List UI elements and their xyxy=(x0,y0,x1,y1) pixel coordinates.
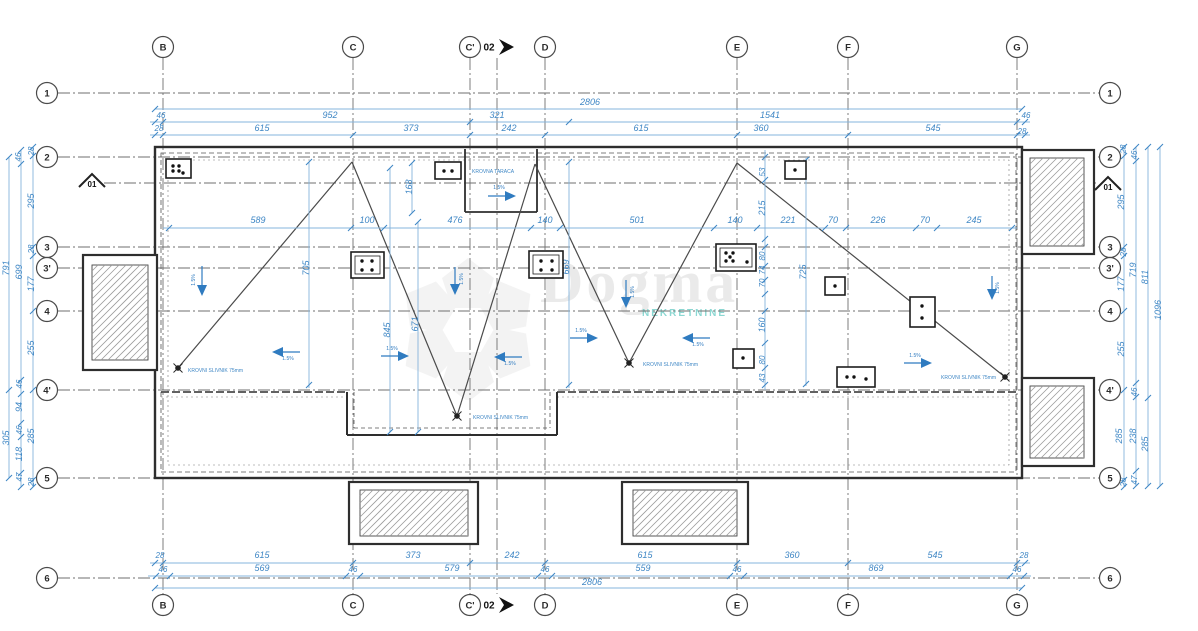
dim-label: 1096 xyxy=(1153,300,1163,320)
dim-label: 615 xyxy=(254,123,270,133)
dim-label: 705 xyxy=(301,260,311,276)
slope-arrow-icon xyxy=(197,285,207,296)
dim-label: 28 xyxy=(1017,127,1027,136)
dim-label: 845 xyxy=(382,322,392,338)
slope-arrow-icon xyxy=(921,358,932,368)
vent-dot xyxy=(724,259,727,262)
dim-label: 952 xyxy=(322,110,337,120)
slope-label: 1.5% xyxy=(459,273,465,285)
terrace-right-bottom-frame xyxy=(1022,378,1094,466)
vent-dot xyxy=(442,169,445,172)
section-marker-label: 02 xyxy=(483,43,495,54)
dim-label: 140 xyxy=(537,215,552,225)
roof-outer-edge xyxy=(155,147,1022,478)
vent-dot xyxy=(741,356,744,359)
slope-label: 1.5% xyxy=(493,185,505,191)
dim-label: 215 xyxy=(757,200,767,217)
section-arrow-icon xyxy=(499,597,514,613)
vent-dot xyxy=(370,259,373,262)
vent-dot xyxy=(731,259,734,262)
grid-bubble-label: 5 xyxy=(44,473,50,484)
vent-dot xyxy=(171,164,174,167)
dim-label: 46 xyxy=(157,111,166,120)
grid-bubble-label: B xyxy=(160,600,167,611)
dim-label: 74 xyxy=(758,265,767,274)
valley-line xyxy=(457,164,535,416)
vent-dot xyxy=(177,164,180,167)
slope-label: 1.5% xyxy=(692,342,704,348)
section-marker-label: 02 xyxy=(483,601,495,612)
dim-label: 360 xyxy=(753,123,768,133)
dim-label: 80 xyxy=(758,251,767,260)
ridge-line xyxy=(178,162,352,368)
dim-label: 46 xyxy=(15,379,24,388)
dim-label: 46 xyxy=(1022,111,1031,120)
dim-label: 1541 xyxy=(760,110,780,120)
dim-label: 255 xyxy=(26,340,36,357)
dim-label: 28 xyxy=(154,124,164,133)
dim-label: 2806 xyxy=(579,97,600,107)
vent-dot xyxy=(539,268,542,271)
dim-label: 100 xyxy=(359,215,374,225)
dim-label: 46 xyxy=(1130,150,1139,159)
dim-label: 46 xyxy=(349,565,358,574)
dim-label: 2806 xyxy=(581,577,602,587)
dim-label: 476 xyxy=(447,215,462,225)
dim-label: 242 xyxy=(500,123,516,133)
dim-label: 46 xyxy=(1013,565,1022,574)
dim-label: 360 xyxy=(784,550,799,560)
dim-label: 160 xyxy=(757,317,767,332)
dim-label: 255 xyxy=(1116,341,1126,358)
roof-plan-canvas: Dogma NEKRETNINE xyxy=(0,0,1198,631)
dim-label: 177 xyxy=(1116,276,1126,292)
slope-label: 1.5% xyxy=(909,353,921,359)
grid-bubble-label: 3' xyxy=(1106,263,1114,274)
dim-label: 671 xyxy=(410,316,420,331)
vent-dot xyxy=(181,171,184,174)
roof-plan-drawing: 2806469523211541462861537324261536054528… xyxy=(0,0,1198,631)
annotation-label: KROVNA TARACA xyxy=(472,169,515,175)
vent-dot xyxy=(550,268,553,271)
roof-offset-edge xyxy=(161,153,1016,472)
dim-label: 70 xyxy=(828,215,838,225)
vent-dot xyxy=(920,304,923,307)
slope-arrow-icon xyxy=(505,191,516,201)
vent-dot xyxy=(793,168,796,171)
elevation-marker-label: 01 xyxy=(88,180,97,189)
annotation-label: KROVNI SLIVNIK 75mm xyxy=(941,375,996,381)
dim-label: 699 xyxy=(14,264,24,279)
dim-label: 28 xyxy=(155,551,165,560)
dim-label: 177 xyxy=(26,276,36,292)
vent-dot xyxy=(731,251,734,254)
grid-bubbles: BBCCC'C'DDEEFFGG1122333'3'444'4'55660202… xyxy=(37,37,1122,616)
vent-dot xyxy=(745,260,748,263)
vent-dot xyxy=(920,316,923,319)
dim-label: 579 xyxy=(444,563,459,573)
grid-bubble-label: G xyxy=(1013,600,1020,611)
dim-label: 295 xyxy=(26,193,36,210)
vent-dot xyxy=(845,375,848,378)
annotation-label: KROVNI SLIVNIK 75mm xyxy=(473,415,528,421)
grid-bubble-label: E xyxy=(734,600,740,611)
vent-dot xyxy=(864,377,867,380)
slope-label: 1.5% xyxy=(575,328,587,334)
grid-bubble-label: C xyxy=(350,600,357,611)
grid-bubble-label: 1 xyxy=(1107,88,1113,99)
vent-dot xyxy=(728,255,731,258)
dim-label: 46 xyxy=(1130,387,1139,396)
grid-bubble-label: B xyxy=(160,42,167,53)
grid-bubble-label: 1 xyxy=(44,88,50,99)
vent-dot xyxy=(360,259,363,262)
dim-label: 305 xyxy=(1,430,11,446)
dim-label: 869 xyxy=(868,563,883,573)
slope-label: 1.5% xyxy=(386,346,398,352)
dim-label: 615 xyxy=(637,550,653,560)
dim-label: 559 xyxy=(635,563,650,573)
dim-label: 221 xyxy=(779,215,795,225)
dim-label: 791 xyxy=(1,260,11,275)
grid-bubble-label: C xyxy=(350,42,357,53)
building-outline xyxy=(83,147,1094,544)
dim-label: 46 xyxy=(541,565,550,574)
dim-label: 28 xyxy=(27,146,36,156)
grid-bubble-label: D xyxy=(542,600,549,611)
roof-vent-icon xyxy=(910,297,935,327)
slope-label: 1.5% xyxy=(504,361,516,367)
dim-label: 285 xyxy=(1140,436,1150,453)
dim-label: 70 xyxy=(920,215,930,225)
roof-vent-icon xyxy=(166,159,191,178)
grid-bubble-label: D xyxy=(542,42,549,53)
dim-label: 118 xyxy=(14,447,24,461)
dim-label: 545 xyxy=(925,123,941,133)
dim-label: 615 xyxy=(633,123,649,133)
elevation-marker-label: 01 xyxy=(1104,183,1113,192)
dim-label: 321 xyxy=(489,110,504,120)
dim-label: 285 xyxy=(26,428,36,445)
dim-label: 70 xyxy=(758,278,767,287)
slope-label: 1.5% xyxy=(282,356,294,362)
annotation-label: KROVNI SLIVNIK 75mm xyxy=(188,368,243,374)
grid-bubble-label: 2 xyxy=(44,152,49,163)
dim-label: 46 xyxy=(15,425,24,434)
dim-label: 168 xyxy=(404,179,414,194)
vent-dot xyxy=(370,268,373,271)
dim-label: 373 xyxy=(403,123,418,133)
dim-label: 238 xyxy=(1128,428,1138,444)
ridge-line xyxy=(737,163,1005,377)
grid-bubble-label: C' xyxy=(465,600,474,611)
slope-label: 1.5% xyxy=(630,286,636,298)
dim-label: 373 xyxy=(405,550,420,560)
dim-label: 28 xyxy=(27,477,36,487)
dim-label: 245 xyxy=(965,215,982,225)
dim-label: 47 xyxy=(1130,475,1139,484)
dim-label: 589 xyxy=(250,215,265,225)
vent-dot xyxy=(171,169,174,172)
slope-label: 1.5% xyxy=(995,282,1001,294)
grid-bubble-label: F xyxy=(845,42,851,53)
dim-label: 226 xyxy=(869,215,885,225)
grid-bubble-label: 4' xyxy=(1106,385,1114,396)
vent-dot xyxy=(177,169,180,172)
dim-label: 242 xyxy=(503,550,519,560)
dim-label: 47 xyxy=(15,472,24,481)
vent-dot xyxy=(833,284,836,287)
slope-arrow-icon xyxy=(398,351,409,361)
vent-dot xyxy=(550,259,553,262)
valley-line xyxy=(352,162,457,416)
dim-label: 53 xyxy=(758,167,767,176)
grid-bubble-label: 6 xyxy=(1107,573,1112,584)
dim-label: 501 xyxy=(629,215,644,225)
grid-bubble-label: 3 xyxy=(44,242,49,253)
dim-label: 28 xyxy=(1119,144,1128,154)
annotation-label: KROVNI SLIVNIK 75mm xyxy=(643,362,698,368)
section-arrow-icon xyxy=(499,39,514,55)
dim-label: 43 xyxy=(758,373,767,382)
dim-label: 719 xyxy=(1128,262,1138,277)
vent-dot xyxy=(724,251,727,254)
dim-label: 615 xyxy=(254,550,270,560)
grid-bubble-label: 5 xyxy=(1107,473,1113,484)
grid-bubble-label: 4' xyxy=(43,385,51,396)
dim-label: 80 xyxy=(758,355,767,364)
grid-bubble-label: G xyxy=(1013,42,1020,53)
dim-label: 285 xyxy=(1114,428,1124,445)
roof-offset-edge2 xyxy=(168,160,1009,465)
dim-label: 140 xyxy=(727,215,742,225)
grid-bubble-label: 4 xyxy=(1107,306,1113,317)
dim-label: 94 xyxy=(14,402,24,412)
dim-label: 545 xyxy=(927,550,943,560)
dim-label: 28 xyxy=(27,244,36,254)
vent-dot xyxy=(852,375,855,378)
dim-label: 295 xyxy=(1116,194,1126,211)
vent-dot xyxy=(539,259,542,262)
dim-label: 46 xyxy=(159,565,168,574)
grid-bubble-label: E xyxy=(734,42,740,53)
roof-symbols: 1.5%1.5%1.5%1.5%1.5%1.5%1.5%1.5%1.5%1.5%… xyxy=(166,159,1010,421)
vent-dot xyxy=(360,268,363,271)
grid-bubble-label: F xyxy=(845,600,851,611)
dim-label: 569 xyxy=(254,563,269,573)
slope-arrow-icon xyxy=(587,333,598,343)
hatch-fills xyxy=(92,158,1084,536)
grid-bubble-label: 6 xyxy=(44,573,49,584)
grid-bubble-label: C' xyxy=(465,42,474,53)
grid-bubble-label: 2 xyxy=(1107,152,1112,163)
slope-label: 1.5% xyxy=(191,274,197,286)
dim-label: 28 xyxy=(1019,551,1029,560)
dim-label: 46 xyxy=(733,565,742,574)
grid-bubble-label: 3 xyxy=(1107,242,1112,253)
roof-vent-icon xyxy=(837,367,875,387)
grid-bubble-label: 4 xyxy=(44,306,50,317)
roof-ridge-lines xyxy=(178,162,1005,416)
roof-vent-icon xyxy=(435,162,461,179)
dim-label: 725 xyxy=(798,264,808,280)
vent-dot xyxy=(450,169,453,172)
dim-label: 811 xyxy=(1140,270,1150,284)
dim-label: 46 xyxy=(14,152,23,161)
grid-bubble-label: 3' xyxy=(43,263,51,274)
